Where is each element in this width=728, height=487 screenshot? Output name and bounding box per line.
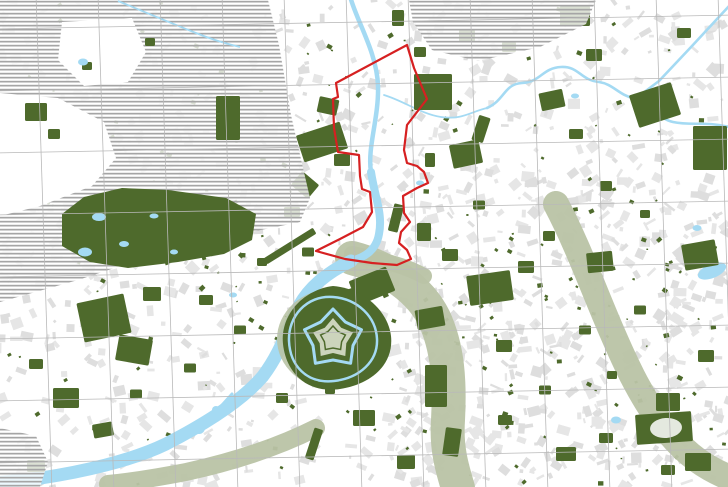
park-lake [119, 241, 129, 247]
lake [611, 417, 621, 424]
park-lake [78, 59, 88, 66]
park-patch [397, 455, 415, 469]
park-patch [130, 390, 142, 399]
park-patch [234, 326, 246, 335]
park-patch [466, 270, 514, 306]
city-map [0, 0, 728, 487]
park-patch [29, 359, 43, 369]
park-patch [543, 231, 555, 241]
lake [193, 422, 205, 434]
park-patch [607, 371, 617, 379]
park-patch [414, 47, 426, 57]
park-lake [170, 250, 178, 255]
lake [693, 225, 702, 231]
park-patch [685, 453, 711, 471]
park-patch [353, 410, 375, 426]
park-patch [473, 201, 485, 210]
park-patch [600, 181, 612, 191]
park-patch [48, 129, 60, 139]
park-patch [599, 433, 613, 443]
park-patch [216, 96, 240, 140]
park-patch [145, 38, 155, 46]
park-patch [442, 249, 458, 261]
park-patch [496, 340, 512, 352]
park-patch [656, 393, 680, 411]
lake [229, 293, 237, 298]
park-patch [640, 210, 650, 218]
park-patch [498, 415, 512, 425]
park-patch [25, 103, 47, 121]
park-patch [199, 295, 213, 305]
park-patch [184, 364, 196, 373]
park-patch [661, 465, 675, 475]
park-lake [78, 248, 92, 257]
park-patch [417, 223, 431, 241]
lake [571, 94, 579, 99]
map-canvas [0, 0, 728, 487]
park-patch [53, 388, 79, 408]
park-patch [143, 287, 161, 301]
park-patch [586, 49, 602, 61]
park-patch [569, 129, 583, 139]
park-patch [334, 154, 350, 166]
park-patch [257, 258, 267, 266]
park-lake [150, 214, 159, 219]
park-patch [302, 248, 314, 257]
park-patch [586, 251, 614, 274]
park-patch [425, 153, 435, 167]
park-patch [392, 10, 404, 26]
park-patch [556, 447, 576, 461]
park-patch [693, 126, 727, 170]
park-patch [698, 350, 714, 362]
lake [212, 406, 220, 414]
park-patch [425, 365, 447, 407]
park-patch [579, 326, 591, 335]
park-patch [634, 306, 646, 315]
park-patch [677, 28, 691, 38]
park-patch [276, 393, 288, 403]
park-lake [92, 213, 106, 221]
